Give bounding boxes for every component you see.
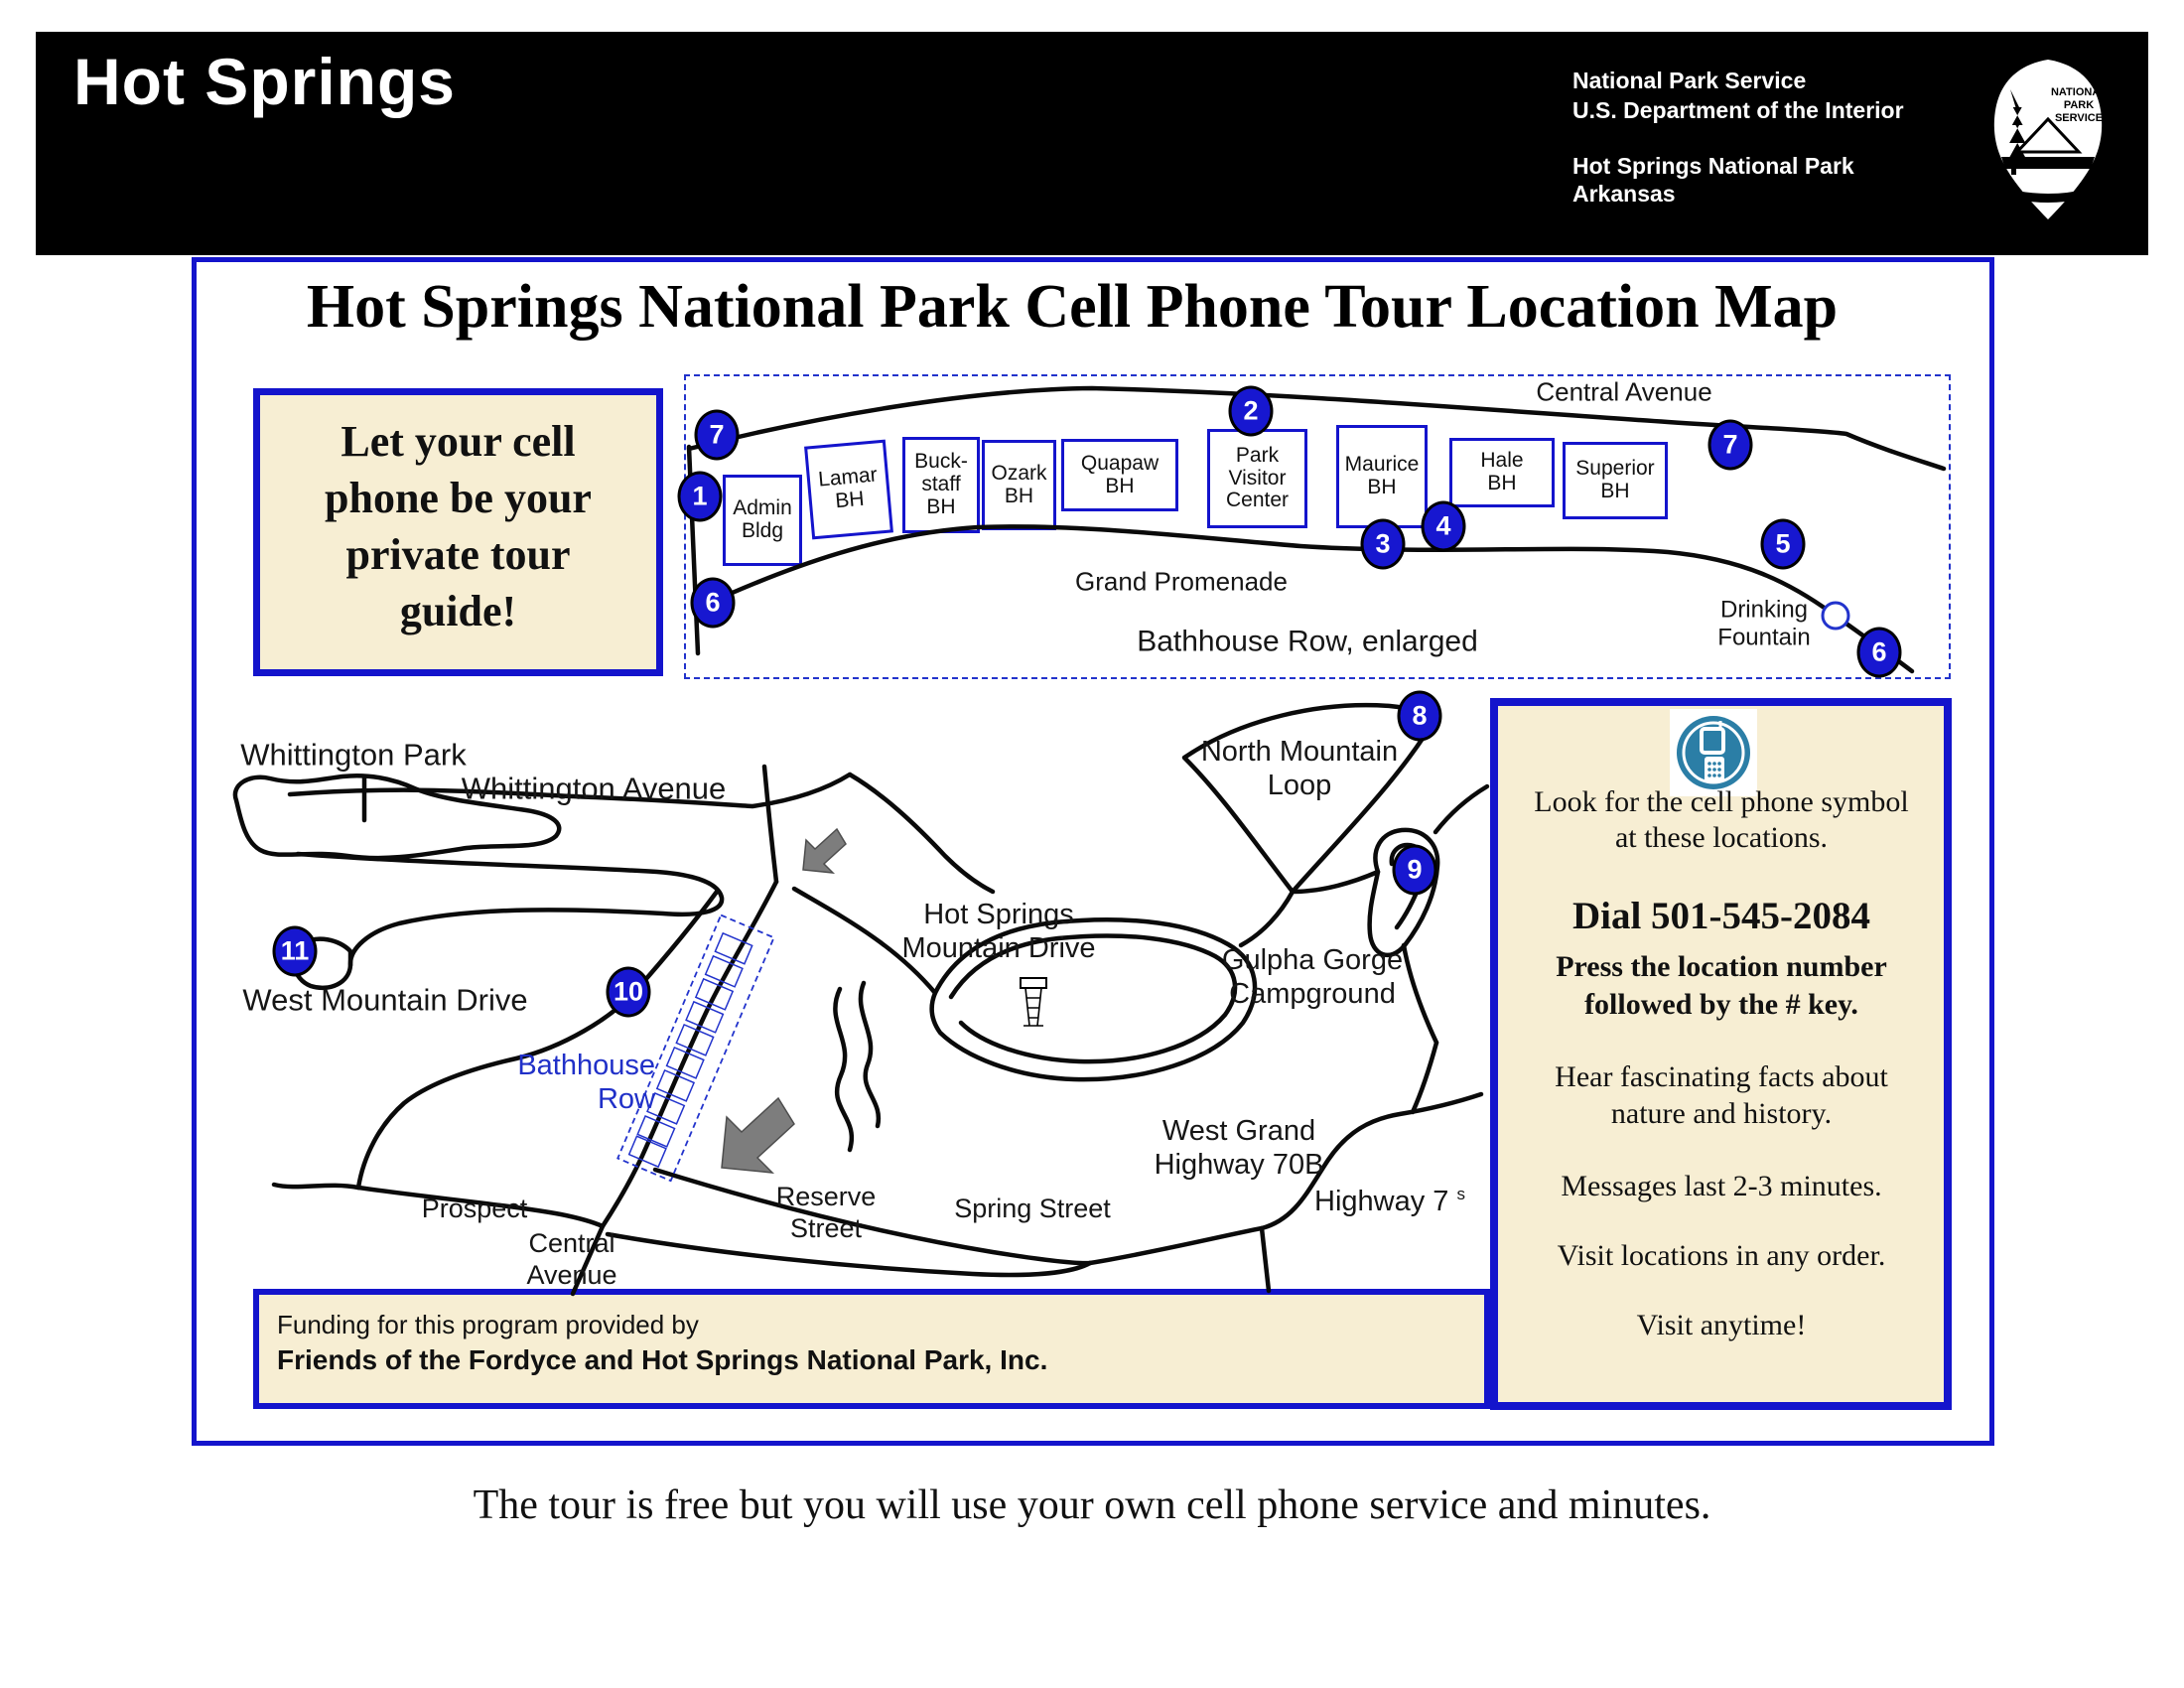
svg-text:NATIONAL: NATIONAL	[2051, 86, 2107, 98]
tour-stop-7b: 7	[1708, 420, 1753, 471]
bathhouse-lamar: Lamar BH	[804, 440, 893, 540]
info-any-order: Visit locations in any order.	[1501, 1239, 1942, 1273]
grand-promenade-label: Grand Promenade	[1075, 567, 1288, 598]
park-title: Hot Springs	[73, 44, 456, 119]
agency-line-2: U.S. Department of the Interior	[1572, 97, 1904, 124]
bathhouse-hale: Hale BH	[1449, 438, 1555, 507]
tour-stop-8: 8	[1398, 691, 1442, 742]
tour-stop-11: 11	[273, 926, 318, 977]
whittington-park-label: Whittington Park	[240, 738, 466, 774]
whittington-avenue-label: Whittington Avenue	[462, 772, 727, 808]
svg-text:PARK: PARK	[2064, 99, 2094, 111]
svg-text:SERVICE: SERVICE	[2055, 112, 2103, 124]
tour-stop-6: 6	[691, 578, 736, 629]
info-messages: Messages last 2-3 minutes.	[1501, 1170, 1942, 1203]
tour-stop-4: 4	[1422, 501, 1466, 552]
central-avenue-main-label: Central Avenue	[526, 1228, 616, 1292]
hot-springs-mountain-drive-label: Hot Springs Mountain Drive	[901, 898, 1095, 965]
spring-street-label: Spring Street	[954, 1194, 1111, 1225]
prospect-label: Prospect	[422, 1194, 528, 1225]
bathhouse-row-label: Bathhouse Row	[496, 1049, 655, 1116]
funding-box: Funding for this program provided by Fri…	[253, 1289, 1490, 1409]
bottom-note: The tour is free but you will use your o…	[149, 1481, 2035, 1529]
info-dial: Dial 501-545-2084	[1501, 894, 1942, 938]
west-grand-label: West Grand Highway 70B	[1155, 1114, 1324, 1182]
nps-arrowhead-logo: NATIONAL PARK SERVICE	[1987, 58, 2109, 222]
tour-stop-1: 1	[678, 472, 723, 522]
page-title: Hot Springs National Park Cell Phone Tou…	[179, 272, 1966, 343]
agency-line-1: National Park Service	[1572, 68, 1806, 94]
central-avenue-label: Central Avenue	[1536, 377, 1711, 408]
tour-stop-6b: 6	[1857, 628, 1902, 678]
promo-box: Let your cell phone be your private tour…	[253, 388, 663, 676]
tour-stop-9: 9	[1393, 845, 1437, 896]
info-anytime: Visit anytime!	[1501, 1309, 1942, 1342]
bathhouse-quapaw: Quapaw BH	[1061, 439, 1178, 511]
park-line-2: Arkansas	[1572, 181, 1676, 208]
info-look: Look for the cell phone symbol at these …	[1501, 784, 1942, 856]
info-press: Press the location number followed by th…	[1501, 948, 1942, 1024]
bathhouse-ozark: Ozark BH	[982, 440, 1056, 530]
gulpha-gorge-label: Gulpha Gorge Campground	[1222, 943, 1403, 1011]
bathhouse-maurice: Maurice BH	[1336, 425, 1428, 528]
reserve-street-label: Reserve Street	[776, 1182, 877, 1245]
bathhouse-admin-bldg: Admin Bldg	[723, 475, 802, 566]
funding-line-2: Friends of the Fordyce and Hot Springs N…	[277, 1342, 1484, 1378]
park-line-1: Hot Springs National Park	[1572, 153, 1854, 180]
north-mountain-loop-label: North Mountain Loop	[1201, 735, 1398, 802]
tour-stop-10: 10	[607, 967, 651, 1018]
west-mountain-drive-label: West Mountain Drive	[242, 983, 527, 1020]
bathhouse-superior: Superior BH	[1563, 442, 1668, 519]
drinking-fountain-label: Drinking Fountain	[1717, 597, 1810, 653]
tour-stop-3: 3	[1361, 519, 1406, 570]
funding-line-1: Funding for this program provided by	[277, 1307, 1484, 1342]
bathhouse-buckstaff: Buck- staff BH	[902, 437, 980, 533]
tour-stop-5: 5	[1761, 519, 1806, 570]
tour-stop-7: 7	[695, 410, 740, 461]
info-hear: Hear fascinating facts about nature and …	[1501, 1058, 1942, 1132]
highway7-label: Highway 7 s	[1314, 1185, 1465, 1218]
tour-stop-2: 2	[1229, 386, 1274, 437]
park-visitor-center: Park Visitor Center	[1207, 429, 1307, 528]
enlarged-caption: Bathhouse Row, enlarged	[1137, 624, 1478, 658]
